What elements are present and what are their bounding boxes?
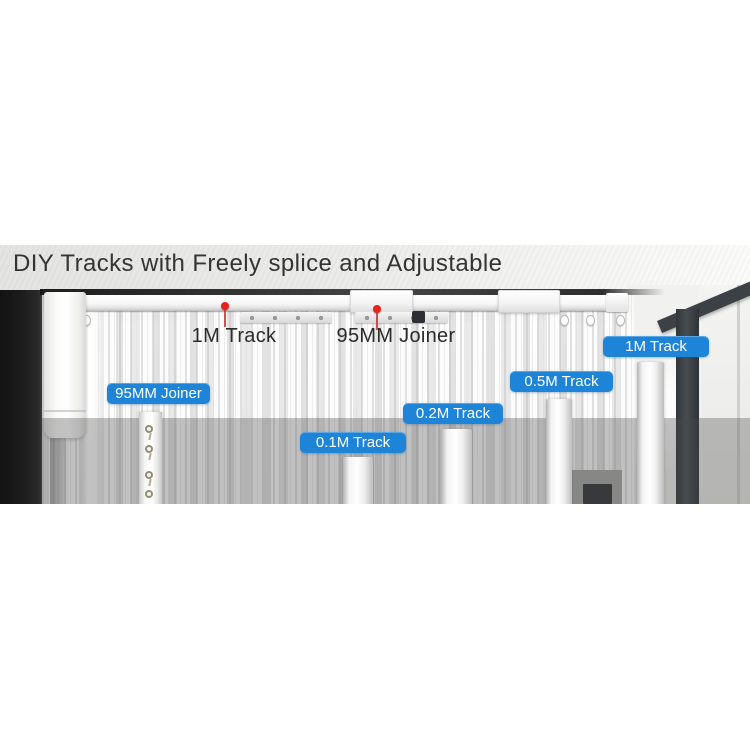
track-joiner-block — [350, 290, 413, 313]
curtain-glider-hook — [616, 315, 625, 326]
badge-0-1m-track: 0.1M Track — [300, 432, 406, 453]
track-piece-0-5m — [546, 399, 572, 504]
screw-icon — [365, 316, 369, 320]
screw-icon — [434, 316, 438, 320]
badge-0-2m-track: 0.2M Track — [403, 403, 503, 424]
track-piece-0-1m — [343, 457, 373, 504]
curtain-glider-hook — [586, 315, 595, 326]
screw-icon — [273, 316, 277, 320]
product-image: DIY Tracks with Freely splice and Adjust… — [0, 0, 750, 750]
joiner-strip-piece — [139, 412, 162, 504]
track-piece-0-2m — [441, 429, 472, 504]
mounting-bracket — [355, 312, 448, 323]
badge-1m-track: 1M Track — [603, 336, 709, 357]
mounting-bracket — [240, 312, 332, 323]
eyelet-tail — [148, 433, 151, 440]
screw-icon — [250, 316, 254, 320]
screw-icon — [388, 316, 392, 320]
screw-icon — [319, 316, 323, 320]
page-title: DIY Tracks with Freely splice and Adjust… — [13, 250, 713, 284]
motor-seam-line — [44, 410, 86, 412]
screw-eyelet-icon — [145, 490, 153, 498]
eyelet-tail — [148, 453, 151, 460]
badge-95mm-joiner: 95MM Joiner — [107, 383, 210, 404]
curtain-motor-housing — [44, 292, 86, 438]
track-end-cap — [606, 293, 628, 312]
callout-95mm-joiner: 95MM Joiner — [326, 325, 466, 349]
callout-1m-track: 1M Track — [174, 325, 294, 349]
track-piece-1m — [637, 362, 664, 504]
curtain-glider-hook — [560, 315, 569, 326]
badge-0-5m-track: 0.5M Track — [510, 371, 613, 392]
screw-icon — [296, 316, 300, 320]
track-clip — [412, 311, 425, 323]
eyelet-tail — [148, 479, 151, 486]
dark-wall-panel — [0, 290, 42, 504]
track-joiner-block — [498, 290, 560, 313]
